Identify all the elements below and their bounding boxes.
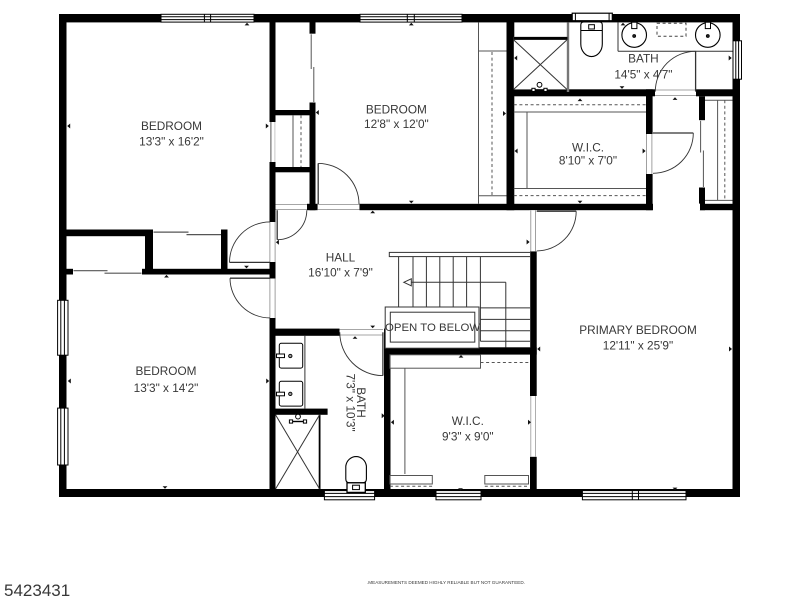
svg-text:7'3" x 10'3": 7'3" x 10'3" — [344, 373, 358, 431]
svg-text:.MEASUREMENTS DEEMED HIGHLY RE: .MEASUREMENTS DEEMED HIGHLY RELIABLE BUT… — [367, 580, 525, 585]
svg-text:16'10" x 7'9": 16'10" x 7'9" — [308, 266, 373, 280]
svg-text:HALL: HALL — [326, 251, 356, 265]
svg-text:12'8" x 12'0": 12'8" x 12'0" — [364, 117, 429, 131]
svg-text:W.I.C.: W.I.C. — [452, 414, 484, 428]
svg-text:9'3" x 9'0": 9'3" x 9'0" — [442, 430, 494, 444]
svg-text:BEDROOM: BEDROOM — [136, 364, 197, 378]
svg-text:PRIMARY BEDROOM: PRIMARY BEDROOM — [579, 323, 697, 337]
svg-text:BEDROOM: BEDROOM — [366, 103, 427, 117]
svg-text:8'10" x 7'0": 8'10" x 7'0" — [559, 154, 617, 168]
svg-text:OPEN TO BELOW: OPEN TO BELOW — [385, 322, 480, 334]
svg-text:5423431: 5423431 — [4, 581, 70, 600]
svg-text:13'3" x 14'2": 13'3" x 14'2" — [134, 381, 199, 395]
svg-text:14'5" x 4'7": 14'5" x 4'7" — [614, 67, 672, 81]
svg-text:BEDROOM: BEDROOM — [141, 119, 202, 133]
svg-text:W.I.C.: W.I.C. — [572, 141, 604, 155]
svg-text:BATH: BATH — [628, 52, 659, 66]
svg-text:13'3" x 16'2": 13'3" x 16'2" — [139, 135, 204, 149]
svg-text:12'11" x 25'9": 12'11" x 25'9" — [603, 339, 673, 353]
